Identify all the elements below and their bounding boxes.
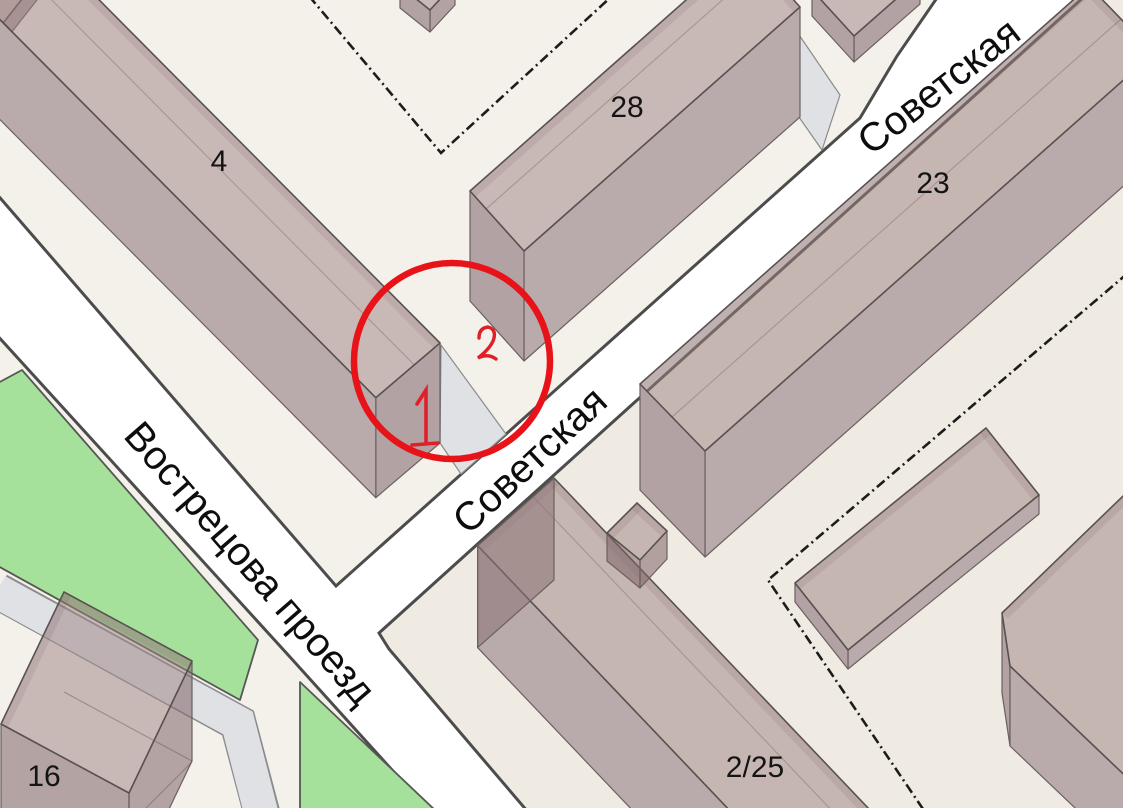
svg-text:4: 4 bbox=[211, 145, 228, 178]
svg-text:16: 16 bbox=[27, 760, 60, 793]
svg-text:23: 23 bbox=[916, 167, 949, 200]
svg-text:2/25: 2/25 bbox=[726, 751, 784, 784]
svg-text:28: 28 bbox=[610, 91, 643, 124]
